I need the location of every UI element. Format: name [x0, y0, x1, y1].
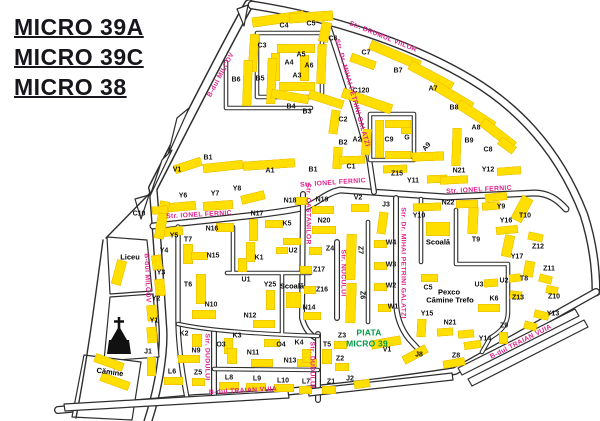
building-label-T10: T10	[519, 213, 531, 220]
building-label-Y7: Y7	[211, 191, 220, 198]
building-label-J2: J2	[346, 376, 354, 383]
building-label-Z6: Z6	[359, 291, 366, 299]
landmark-label-2: Scoală	[280, 283, 304, 290]
building-label-Z8: Z8	[452, 353, 460, 360]
building-label-K4: K4	[295, 340, 304, 347]
building-label-W3: W3	[386, 262, 397, 269]
street-label-10: Str. DUDULUI	[204, 333, 211, 380]
building-label-T7: T7	[184, 237, 192, 244]
building-label-Y10: Y10	[413, 213, 425, 220]
building-label-Y16: Y16	[500, 218, 512, 225]
building-label-C5: C5	[424, 285, 433, 292]
building-label-N13: N13	[284, 358, 297, 365]
building-label-N17: N17	[251, 211, 264, 218]
building-label-N18: N18	[284, 198, 297, 205]
building-label-W4: W4	[386, 240, 397, 247]
building-label-Z1: Z1	[327, 379, 335, 386]
building-label-T9: T9	[472, 237, 480, 244]
building-label-Z15: Z15	[391, 171, 403, 178]
building-label-K3: K3	[233, 333, 242, 340]
building-label-B3: B3	[303, 109, 312, 116]
title-line-1: MICRO 39A	[14, 12, 144, 42]
building-label-N10: N10	[205, 302, 218, 309]
building-label-U2: U2	[289, 248, 298, 255]
building-label-N12: N12	[244, 313, 257, 320]
building-label-Z17: Z17	[313, 267, 325, 274]
building-label-A3: A3	[293, 73, 302, 80]
building-label-A6: A6	[305, 63, 314, 70]
church-icon	[104, 315, 134, 357]
landmark-label-7: MICRO 39	[346, 341, 388, 348]
building-label-A4: A4	[285, 60, 294, 67]
building-label-Y25: Y25	[264, 282, 276, 289]
building-label-Z9: Z9	[500, 323, 508, 330]
building-label-B9: B9	[465, 138, 474, 145]
building-label-Y17: Y17	[511, 254, 523, 261]
street-label-11: Str. DUDULUI	[309, 341, 316, 388]
building-label-A1: A1	[266, 168, 275, 175]
building-label-Z7: Z7	[357, 246, 364, 254]
building-label-B1: B1	[309, 167, 318, 174]
building-label-Y5: Y5	[170, 233, 179, 240]
building-label-U2: U2	[500, 278, 509, 285]
building-label-Z13: Z13	[512, 295, 524, 302]
street-label-9: Str. Dr. MIHAI PETRINI GALATZI	[400, 207, 407, 319]
building-label-C1: C1	[347, 164, 356, 171]
map-title: MICRO 39A MICRO 39C MICRO 38	[14, 12, 144, 102]
building-label-C10: C10	[133, 211, 146, 218]
title-line-2: MICRO 39C	[14, 42, 144, 72]
building-label-A2: A2	[353, 137, 362, 144]
building-label-Y6: Y6	[179, 193, 188, 200]
building-label-O4: O4	[276, 342, 285, 349]
building-label-L6: L6	[168, 369, 176, 376]
building-label-Y2: Y2	[152, 296, 161, 303]
building-label-Y13: Y13	[547, 311, 559, 318]
building-label-N16: N16	[206, 226, 219, 233]
building-label-B6: B6	[232, 77, 241, 84]
building-label-J3: J3	[382, 202, 390, 209]
street-label-12: B-dul TRAIAN VUIA	[209, 386, 277, 397]
street-label-2: B-dul MILCOV	[143, 253, 152, 303]
building-label-Y4: Y4	[160, 248, 169, 255]
building-label-V1: V1	[173, 167, 182, 174]
building-label-K1: K1	[255, 255, 264, 262]
landmark-label-5: Cămine Trefo	[426, 297, 474, 304]
building-label-N21: N21	[453, 168, 466, 175]
street-label-7: Str. NUCULUI	[340, 249, 347, 296]
street-label-5: Str. IONEL FERNIC	[446, 185, 512, 195]
building-label-C9: C9	[385, 137, 394, 144]
map-canvas: C4C5C6C3A5A4A6A3B6B5B4B3C7B7C120A7B8A8B9…	[0, 0, 600, 421]
landmark-label-1: Cămine	[96, 367, 124, 378]
building-label-N11: N11	[247, 350, 259, 357]
building-label-N9: N9	[192, 348, 201, 355]
building-label-B4: B4	[287, 104, 296, 111]
building-label-K2: K2	[180, 331, 189, 338]
building-label-C4: C4	[280, 23, 289, 30]
building-label-N21: N21	[444, 320, 457, 327]
building-label-Y9: Y9	[497, 204, 506, 211]
building-label-U3: U3	[475, 282, 484, 289]
building-label-C8: C8	[484, 147, 493, 154]
building-label-Y8: Y8	[233, 186, 242, 193]
building-label-Z2: Z2	[336, 356, 344, 363]
building-label-A8: A8	[472, 125, 481, 132]
street-label-0: Str. DRUMUL VIILOR	[348, 20, 417, 54]
building-label-K6: K6	[490, 296, 499, 303]
building-label-Z16: Z16	[316, 287, 328, 294]
building-label-B1: B1	[204, 155, 213, 162]
building-label-L10: L10	[277, 378, 289, 385]
title-line-3: MICRO 38	[14, 72, 144, 102]
building-label-Y3: Y3	[157, 270, 166, 277]
building-label-Y1: Y1	[150, 318, 159, 325]
building-label-O3: O3	[216, 342, 225, 349]
building-label-T8: T8	[520, 276, 528, 283]
building-label-C3: C3	[258, 43, 267, 50]
building-label-Z12: Z12	[532, 244, 544, 251]
street-label-1: B-dul MILCOV	[206, 52, 235, 99]
building-label-B2: B2	[339, 140, 348, 147]
building-label-Y15: Y15	[421, 311, 433, 318]
building-label-Z3: Z3	[338, 333, 346, 340]
building-label-C5: C5	[307, 21, 316, 28]
building-label-Z4: Z4	[326, 246, 334, 253]
building-label-Y14: Y14	[479, 336, 491, 343]
building-label-Z5: Z5	[194, 370, 202, 377]
building-label-C7: C7	[362, 50, 371, 57]
building-label-B8: B8	[450, 105, 459, 112]
building-label-B7: B7	[394, 68, 403, 75]
building-label-L8: L8	[225, 375, 233, 382]
building-label-N22: N22	[442, 200, 455, 207]
building-label-Y12: Y12	[482, 167, 494, 174]
building-label-K5: K5	[283, 221, 292, 228]
street-label-6: Str. CASTANILOR	[305, 183, 312, 244]
building-label-C2: C2	[339, 117, 348, 124]
street-label-3: Str. IONEL FERNIC	[166, 210, 232, 220]
landmark-label-6: PIATA	[356, 330, 381, 337]
landmark-label-3: Scoală	[426, 239, 450, 246]
building-label-N19: N19	[316, 197, 329, 204]
building-label-A5: A5	[297, 52, 306, 59]
building-label-U1: U1	[242, 277, 251, 284]
building-label-Z10: Z10	[548, 294, 560, 301]
building-label-Z11: Z11	[543, 266, 555, 273]
building-label-A9: A9	[421, 141, 432, 152]
building-label-T5: T5	[323, 342, 331, 349]
building-label-L9: L9	[253, 376, 261, 383]
landmark-label-0: Liceu	[120, 254, 140, 261]
building-label-V2: V2	[354, 195, 363, 202]
building-label-T6: T6	[184, 282, 192, 289]
building-label-A7: A7	[429, 86, 438, 93]
building-label-W2: W2	[386, 283, 397, 290]
building-label-W1: W1	[388, 304, 399, 311]
building-label-Y11: Y11	[407, 178, 419, 185]
street-label-13: B-dul TRAIAN VUIA	[489, 323, 553, 360]
building-label-J1: J1	[144, 349, 152, 356]
building-label-N20: N20	[318, 218, 331, 225]
building-label-N15: N15	[207, 253, 220, 260]
building-label-N14: N14	[303, 305, 316, 312]
building-label-G: G	[404, 135, 409, 142]
building-label-B5: B5	[256, 76, 265, 83]
building-label-J8: J8	[415, 352, 423, 359]
landmark-label-4: Pexco	[438, 289, 460, 296]
